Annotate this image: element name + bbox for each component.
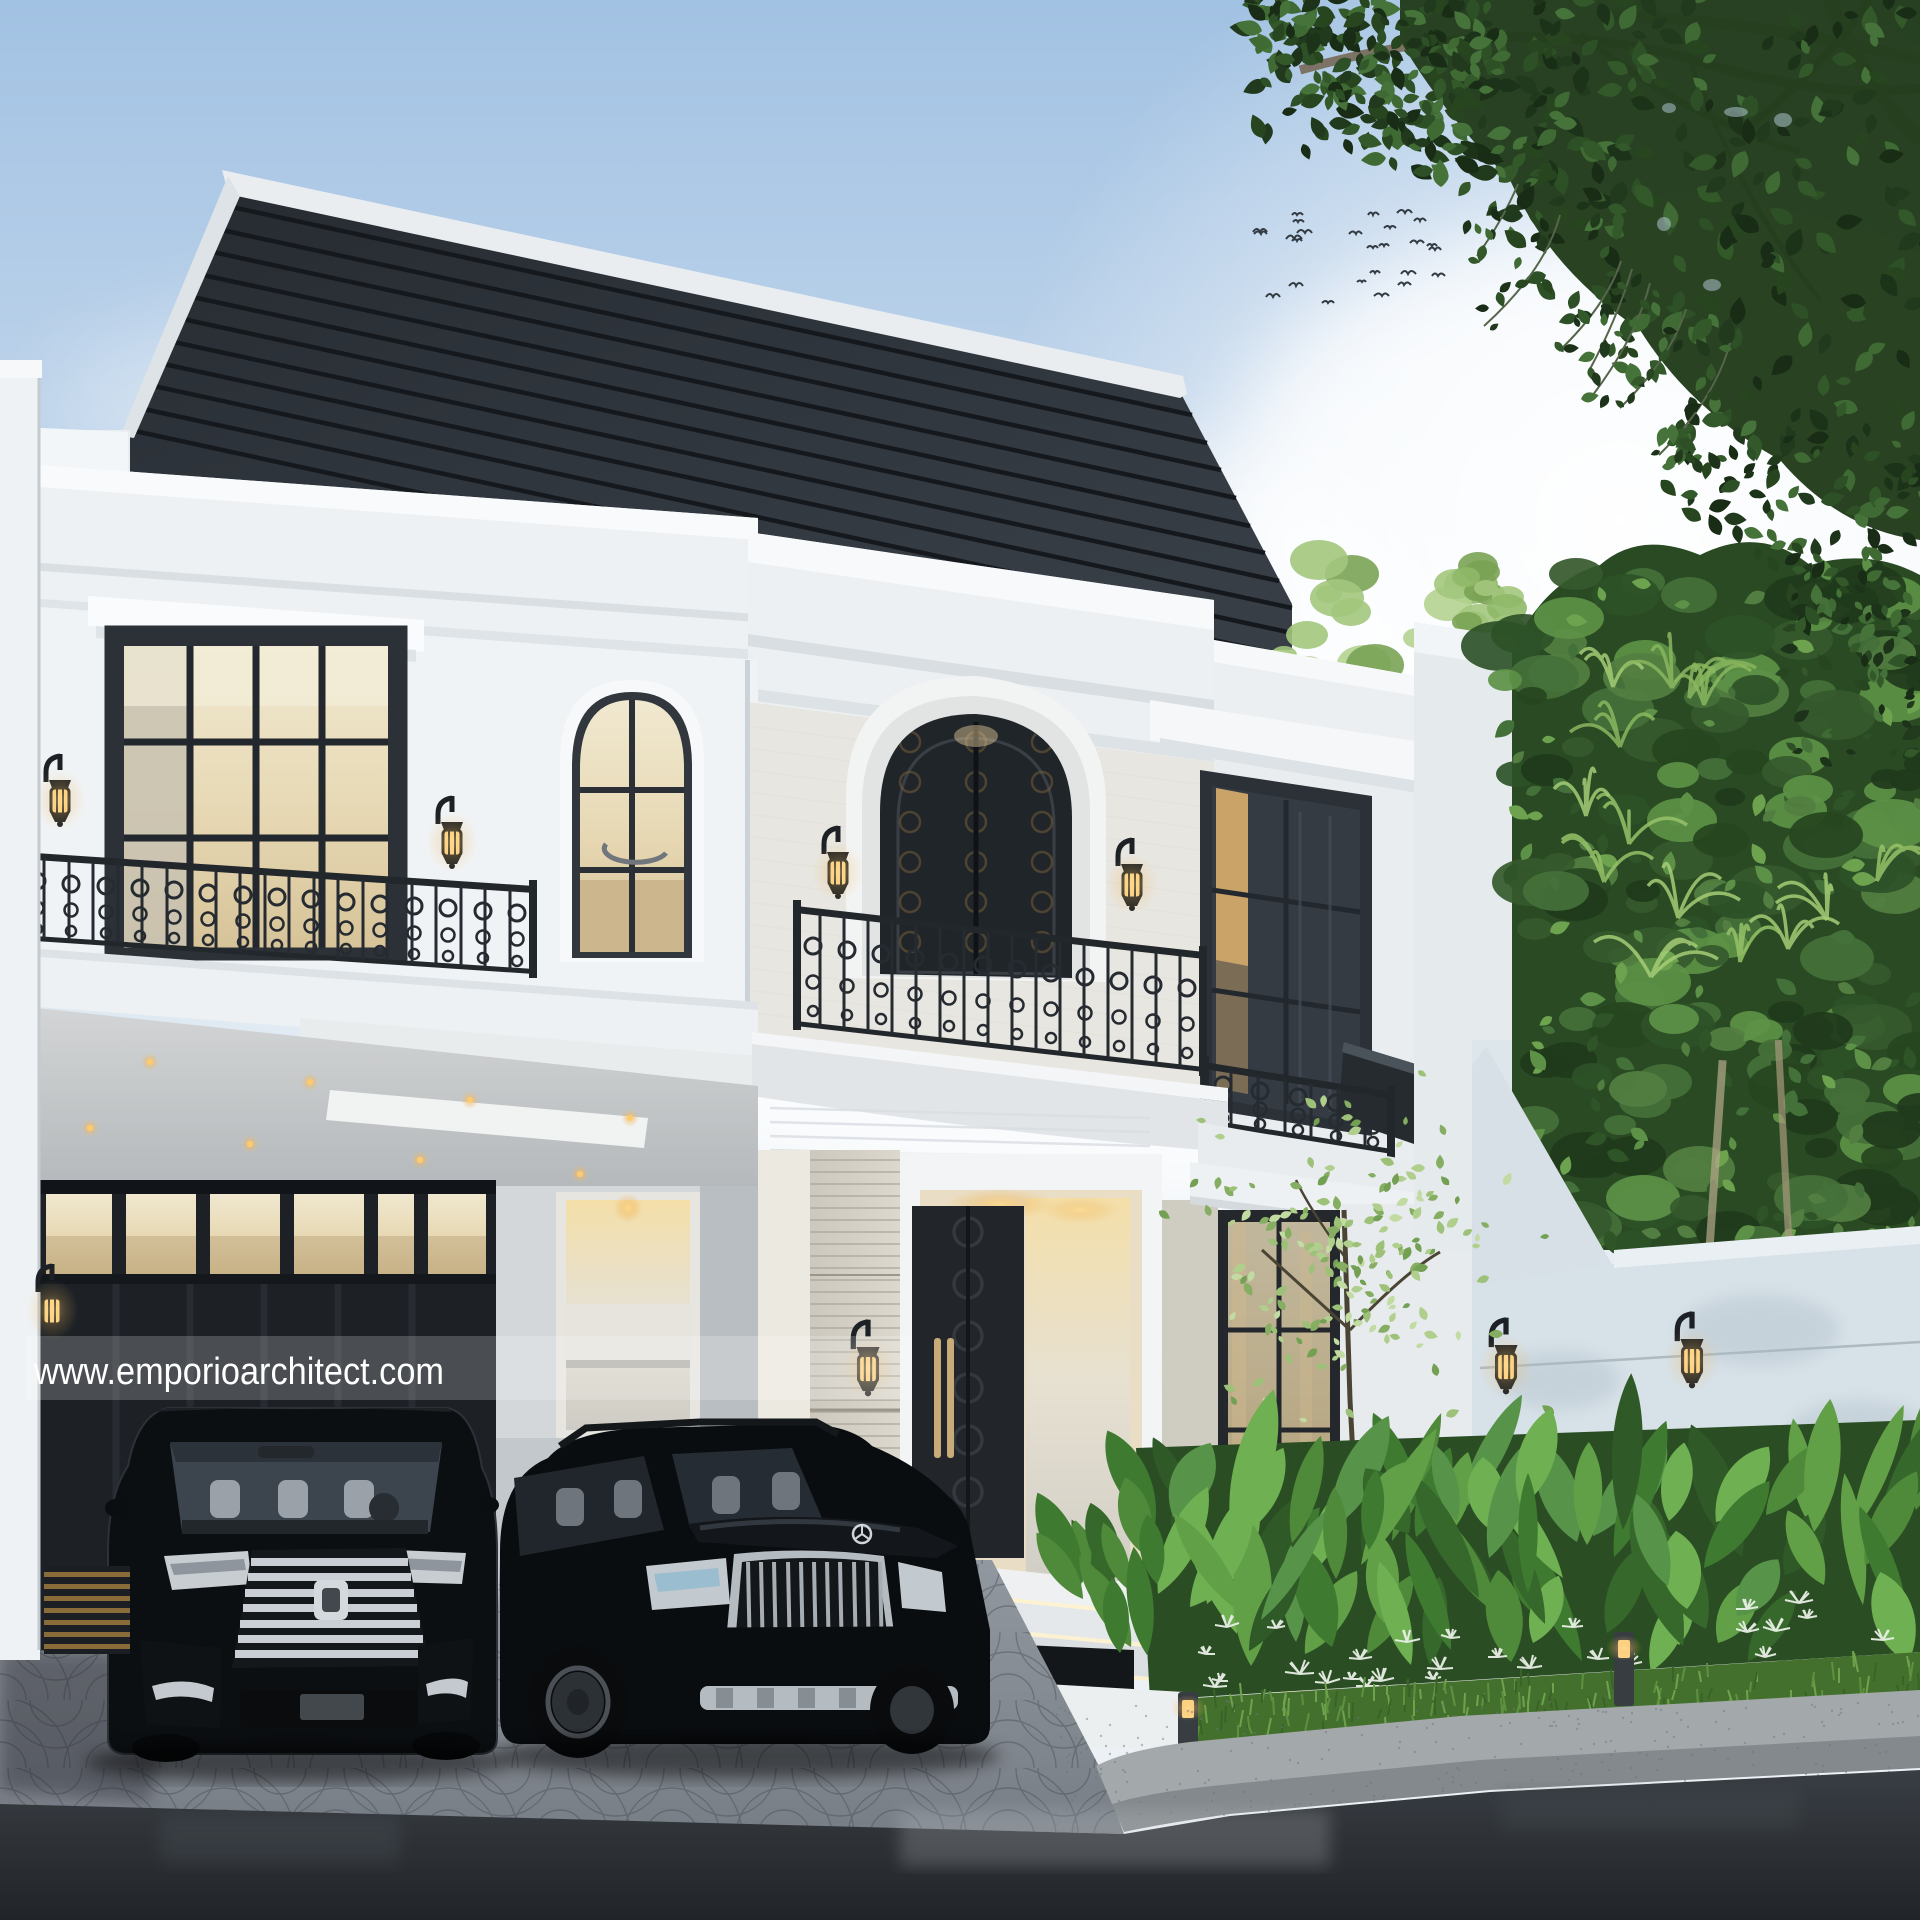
svg-text:www.emporioarchitect.com: www.emporioarchitect.com — [33, 1351, 444, 1393]
